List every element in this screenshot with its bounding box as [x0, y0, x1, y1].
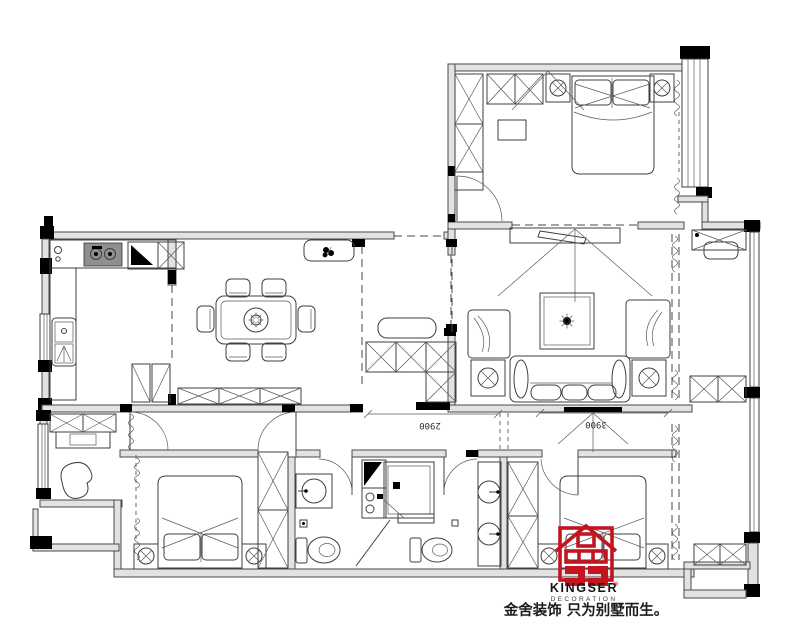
balcony-cabinet-icon [690, 376, 746, 402]
door-arc-icon [258, 412, 296, 450]
light-marker [558, 413, 628, 452]
toilet-icon [410, 538, 452, 562]
curtain-icon [673, 524, 678, 560]
bedroom-left [134, 412, 296, 569]
chair-icon [226, 279, 250, 297]
door-arc-icon [319, 457, 352, 495]
kingser-logo: KINGSER ® DECORATION [550, 526, 619, 603]
pillow-icon [575, 80, 611, 105]
rug-icon [498, 120, 526, 140]
shower-icon [384, 462, 434, 518]
window-icon [750, 232, 759, 387]
registered-mark: ® [614, 581, 619, 588]
pillow-icon [202, 534, 238, 560]
door-arc-icon [457, 176, 502, 221]
plant-shelf [304, 240, 354, 261]
door-arc-icon [130, 412, 168, 450]
brand-name: KINGSER [550, 581, 618, 595]
plant-icon [323, 247, 334, 257]
curtain-icon [675, 80, 680, 116]
bed-icon [560, 476, 646, 568]
bench-icon [378, 318, 436, 338]
counter [50, 268, 76, 400]
bathroom-left [296, 457, 390, 566]
door-arc-icon [444, 457, 477, 495]
dining-table-icon [216, 296, 296, 344]
shower-room [384, 462, 434, 523]
vanity-icon [296, 474, 332, 508]
desk-icon [56, 432, 110, 448]
nightstand-lamp-icon [546, 74, 570, 102]
stove-icon [84, 243, 122, 266]
entry-hall [304, 240, 456, 402]
floor-plan-page: 2900 3900 [0, 0, 800, 640]
angled-wall [356, 520, 390, 566]
living-room [468, 228, 679, 402]
floor-plan-canvas: 2900 3900 [0, 0, 800, 640]
slogan-text: 金舍装饰 只为别墅而生。 [503, 601, 669, 619]
shoe-cabinet-icon [366, 342, 456, 402]
curtain-icon [673, 370, 678, 400]
rug-icon [540, 293, 594, 349]
chair-icon [226, 343, 250, 361]
dimension-text: 2900 [419, 420, 441, 430]
curtain-icon [129, 414, 134, 450]
window-icon [682, 59, 708, 187]
chair-icon [262, 279, 286, 297]
balcony-right [690, 230, 746, 402]
side-table-lamp-icon [632, 360, 666, 396]
chair-icon [298, 306, 315, 332]
cabinet-icon [487, 74, 543, 104]
curtain-icon [135, 458, 140, 488]
wardrobe-icon [455, 74, 483, 190]
bed-icon [158, 476, 242, 568]
washer-icon [362, 460, 386, 518]
chair-icon [262, 343, 286, 361]
fridge-icon [128, 242, 158, 269]
laundry-counter-icon [692, 230, 746, 259]
dimension-text: 3900 [585, 419, 607, 429]
armchair-icon [468, 310, 510, 358]
window-icon [40, 314, 50, 368]
nightstand-lamp-icon [242, 544, 266, 569]
nightstand-lamp-icon [538, 544, 560, 569]
study-chair-icon [61, 462, 92, 498]
folding-door-icon [132, 364, 170, 402]
window-icon [750, 398, 759, 532]
sofa-icon [510, 356, 630, 402]
kitchen-sink-icon [52, 318, 76, 366]
walls [30, 46, 760, 598]
sideboard-icon [178, 388, 301, 404]
kitchen [50, 240, 184, 402]
bed-icon [572, 76, 654, 174]
wardrobe-icon [258, 452, 288, 568]
wardrobe-icon [508, 462, 538, 568]
vanity-icon [478, 462, 501, 566]
curtain-icon [673, 236, 678, 272]
window-icon [38, 424, 48, 490]
dining-room [178, 279, 315, 404]
bedroom-top-right [455, 71, 680, 221]
nightstand-lamp-icon [646, 544, 668, 569]
corridor-dimensions: 2900 3900 [129, 409, 673, 452]
chair-icon [197, 306, 214, 332]
pillow-icon [613, 80, 649, 105]
armchair-icon [626, 300, 670, 358]
ornament-icon [560, 314, 575, 329]
bathroom-right [410, 457, 501, 566]
side-table-lamp-icon [471, 360, 505, 396]
floor-drain-icon [452, 520, 458, 526]
tv-icon [538, 231, 586, 244]
pillow-icon [164, 534, 200, 560]
toilet-icon [296, 537, 340, 563]
